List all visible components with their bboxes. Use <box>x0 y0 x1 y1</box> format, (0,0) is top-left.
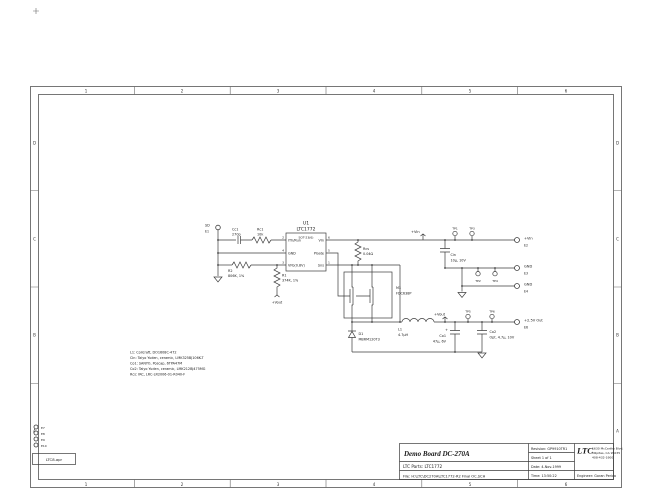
file-path: File: H:\LTC\DC270A\LTC1772-R2 Final OC.… <box>403 475 486 479</box>
spare-terminal-4-label: E10 <box>41 444 47 448</box>
vin-terminal-name: +Vin <box>524 237 533 241</box>
zone-col-bot-1: 1 <box>85 482 88 487</box>
vin-net-label: +Vin <box>411 230 420 234</box>
ic-part: LTC1772 <box>297 227 316 233</box>
zone-row-right-D: D <box>616 141 619 146</box>
testpoint-vin-2-label: TP3 <box>468 227 475 231</box>
outer-border <box>31 87 622 488</box>
zone-col-top-1: 1 <box>85 89 88 94</box>
zone-row-right-B: B <box>616 333 619 338</box>
spare-terminal-3-label: E9 <box>41 438 45 442</box>
sd-terminal <box>216 225 221 230</box>
output-stage: L1 4.7µH D1 MBRM120T3 +Vout + Co1 47µ, 6… <box>348 310 543 359</box>
note-cin: Cin: Taiyo Yuden, ceramic, LMK325BJ106K-… <box>130 356 205 360</box>
gnd2-terminal-id: E4 <box>524 290 528 294</box>
testpoint-vin-1-label: TP1 <box>451 227 458 231</box>
engineer: Engineer: Goran Perica <box>577 474 616 478</box>
vin-terminal-id: E2 <box>524 244 528 248</box>
pin-num-gnd: 4 <box>282 249 284 253</box>
power-stage: +Vin Rcs 0.04Ω M1 FDC638P <box>326 230 515 323</box>
m1-ref: M1 <box>396 286 401 290</box>
note-l1: L1: Coilcraft, DO1608C-472 <box>130 351 177 355</box>
testpoint-vout-1 <box>466 314 470 318</box>
ltc-parts: LTC Parts: LTC1772 <box>403 464 442 469</box>
vout-net-arrow-left <box>275 295 280 297</box>
vout-terminal <box>515 320 520 325</box>
bom-notes: L1: Coilcraft, DO1608C-472 Cin: Taiyo Yu… <box>130 351 206 377</box>
r2-ref: R2 <box>228 269 233 273</box>
sheet-of: Sheet 1 of 1 <box>531 456 552 460</box>
cin-ref: Cin <box>451 253 456 257</box>
input-section: TP1 TP3 Cin 10µ, 10V +Vin E2 GND E3 TP2 … <box>440 227 533 298</box>
co1-polarity: + <box>445 328 448 332</box>
title-block: Demo Board DC-270A LTC Parts: LTC1772 Fi… <box>400 444 624 480</box>
spare-terminal-1 <box>34 425 38 429</box>
ground-symbol-output <box>478 353 486 358</box>
mosfet-m1-body <box>344 272 392 318</box>
zone-ticks-left <box>31 191 39 384</box>
pin-sns-label: Sns <box>318 264 324 268</box>
zone-col-top-6: 6 <box>565 89 568 94</box>
sd-terminal-id: E1 <box>205 230 209 234</box>
r1-ref: R1 <box>282 274 287 278</box>
date: Date: 4-Nov-1999 <box>531 465 561 469</box>
pin-num-ith: 2 <box>282 236 284 240</box>
zone-col-bot-3: 3 <box>277 482 280 487</box>
cc1-ref: Cc1 <box>232 228 238 232</box>
testpoint-vin-2 <box>470 231 474 235</box>
vout-terminal-name: +2.5V Out <box>524 319 543 323</box>
spare-terminal-4 <box>34 443 38 447</box>
note-rcs: Rcs: IRC, LRC-LR2006-01-R040-F <box>130 373 185 377</box>
d1-value: MBRM120T3 <box>359 338 380 342</box>
testpoint-vin-1 <box>453 231 457 235</box>
diode-d1-triangle <box>349 332 356 338</box>
vin-terminal <box>515 238 520 243</box>
note-co1: Co1: SANYO, Poscap, 6TPA47M <box>130 362 182 366</box>
pin-pgate-label: PGate <box>314 252 324 256</box>
gnd1-terminal-id: E3 <box>524 272 528 276</box>
testpoint-gnd-1-label: TP2 <box>474 279 481 283</box>
capacitor-co2 <box>477 322 487 352</box>
testpoint-vout-2 <box>490 314 494 318</box>
gnd1-terminal-name: GND <box>524 265 532 269</box>
board-title: Demo Board DC-270A <box>403 450 470 458</box>
capacitor-co1 <box>450 322 460 352</box>
zone-row-left-B: B <box>33 333 36 338</box>
testpoint-vout-2-label: TP6 <box>488 310 495 314</box>
rc1-ref: Rc1 <box>257 228 263 232</box>
resistor-rc1 <box>252 237 286 243</box>
zone-row-left-D: D <box>33 141 36 146</box>
wire-source-drops <box>352 265 400 322</box>
capacitor-cin <box>440 240 450 268</box>
pin-gnd-label: GND <box>288 252 296 256</box>
zone-row-left-C: C <box>33 237 36 242</box>
vout-net-label: +Vout <box>434 313 446 317</box>
crosshair-cursor <box>33 8 39 14</box>
vout-net-label-fb: +Vout <box>272 301 283 305</box>
gnd2-terminal-name: GND <box>524 283 532 287</box>
zone-ticks-bottom <box>134 480 517 488</box>
co2-ref: Co2 <box>490 330 497 334</box>
compensation-feedback-network: SD E1 Cc1 270p Rc1 10k R2 806K, 1% R1 37… <box>205 224 299 305</box>
spare-terminal-1-label: E7 <box>41 426 45 430</box>
d1-ref: D1 <box>359 332 364 336</box>
pin-num-pgate: 5 <box>328 249 330 253</box>
zone-col-top-3: 3 <box>277 89 280 94</box>
schematic-canvas: 1 2 3 4 5 6 1 2 3 4 5 6 D C B A D C B A … <box>0 0 647 500</box>
zone-col-bot-5: 5 <box>469 482 472 487</box>
vout-terminal-id: E6 <box>524 326 528 330</box>
wire-ith-cc1 <box>218 236 252 244</box>
address-line1: 1630 McCarthy Blvd. <box>592 447 623 451</box>
ground-symbol-left <box>214 277 222 282</box>
resistor-r1 <box>274 265 280 295</box>
gnd2-terminal <box>515 284 520 289</box>
testpoint-gnd-2 <box>493 272 497 276</box>
zone-col-bot-6: 6 <box>565 482 568 487</box>
ic-ref: U1 <box>303 221 309 227</box>
zone-col-top-2: 2 <box>181 89 184 94</box>
note-co2: Co2: Taiyo Yuden, ceramic, LMK212BJ475MG <box>130 367 206 371</box>
cc1-value: 270p <box>232 233 241 237</box>
zone-row-right-C: C <box>616 237 619 242</box>
pin-num-vin: 6 <box>328 236 330 240</box>
testpoint-vout-1-label: TP5 <box>464 310 471 314</box>
ltc-logo: LTC <box>576 446 593 456</box>
co1-ref: Co1 <box>439 334 446 338</box>
pin-ith-label: ITh/Run <box>288 239 301 243</box>
r2-value: 806K, 1% <box>228 274 245 278</box>
apr-label: LTC8.apr <box>46 457 63 462</box>
spare-terminal-2 <box>34 431 38 435</box>
zone-ticks-top <box>134 87 517 95</box>
pin-vin-label: VIn <box>319 239 324 243</box>
address-line2: Milpitas, CA 95035 <box>592 451 620 455</box>
m1-value: FDC638P <box>396 292 411 296</box>
zone-ticks-right <box>614 191 622 384</box>
zone-row-right-A: A <box>616 429 619 434</box>
schematic-page: 1 2 3 4 5 6 1 2 3 4 5 6 D C B A D C B A … <box>0 0 647 500</box>
r1-value: 374K, 1% <box>282 279 299 283</box>
rcs-value: 0.04Ω <box>363 252 374 256</box>
address-line3: 408-432-1900 <box>592 456 613 460</box>
pin-num-sns: 1 <box>328 261 330 265</box>
testpoint-gnd-2-label: TP4 <box>491 279 498 283</box>
sheet-frame: 1 2 3 4 5 6 1 2 3 4 5 6 D C B A D C B A <box>31 87 622 488</box>
corner-items: E7 E8 E9 E10 LTC8.apr <box>33 425 76 465</box>
sd-terminal-name: SD <box>205 224 210 228</box>
ic-u1: U1 LTC1772 SOT-23(6) ITh/Run GND VFb(0.8… <box>282 221 330 272</box>
cin-value: 10µ, 10V <box>451 259 467 263</box>
rc1-value: 10k <box>257 233 263 237</box>
zone-col-top-5: 5 <box>469 89 472 94</box>
wire-pgate <box>326 253 344 296</box>
co1-value: 47µ, 6V <box>433 340 447 344</box>
resistor-rcs <box>355 240 361 265</box>
pin-num-vfb: 3 <box>282 261 284 265</box>
testpoint-gnd-1 <box>476 272 480 276</box>
vin-net-arrow <box>421 234 426 240</box>
l1-value: 4.7µH <box>398 333 409 337</box>
wire-gnd-branch <box>462 268 515 292</box>
inductor-l1 <box>402 319 434 322</box>
zone-col-bot-2: 2 <box>181 482 184 487</box>
inner-border <box>39 95 614 480</box>
revision: Revision: GP9910TR1 <box>531 447 567 451</box>
spare-terminal-3 <box>34 437 38 441</box>
zone-col-bot-4: 4 <box>373 482 376 487</box>
co2-value: Opt. 4.7µ, 10V <box>490 336 515 340</box>
diode-d1-cathode <box>348 322 356 331</box>
l1-ref: L1 <box>398 328 402 332</box>
zone-col-top-4: 4 <box>373 89 376 94</box>
rcs-ref: Rcs <box>363 247 369 251</box>
ground-symbol-input <box>458 293 466 298</box>
time: Time: 13:50:22 <box>530 474 557 478</box>
wire-drain-drops <box>352 318 372 322</box>
pin-vfb-label: VFb(0.8V) <box>288 264 305 268</box>
spare-terminal-2-label: E8 <box>41 432 45 436</box>
gnd1-terminal <box>515 266 520 271</box>
